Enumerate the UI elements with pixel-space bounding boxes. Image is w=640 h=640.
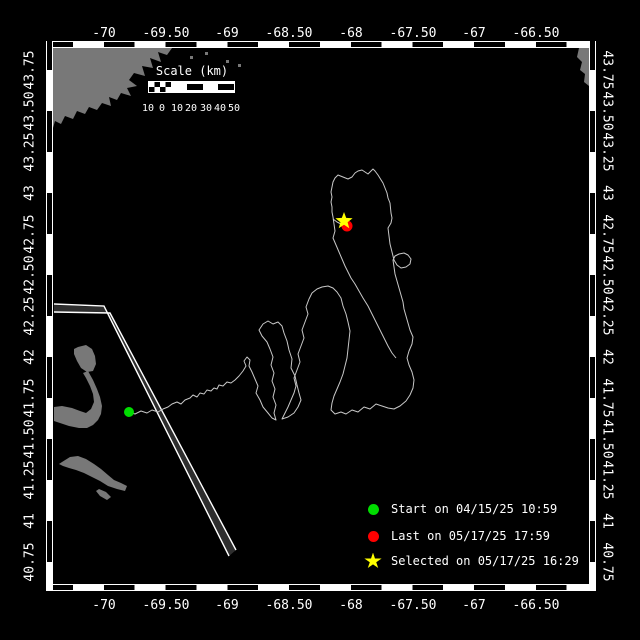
frame-left-border [46, 41, 53, 591]
scalebar-tick-label: 0 [159, 103, 165, 114]
lat-tick-label: 43 [23, 185, 38, 201]
island [205, 52, 208, 55]
island [190, 56, 193, 59]
land-polygon [577, 48, 589, 86]
lat-tick-label: 40.75 [23, 542, 38, 581]
lon-tick-label: -66.50 [513, 598, 560, 613]
legend-label-last: Last on 05/17/25 17:59 [391, 529, 550, 543]
frame-top-border [46, 41, 596, 48]
lon-tick-label: -70 [92, 26, 115, 41]
land-polygon [54, 371, 102, 428]
lat-tick-label: 43.25 [600, 132, 615, 171]
lat-tick-label: 42.25 [23, 296, 38, 335]
legend-item-selected: Selected on 05/17/25 16:29 [363, 553, 579, 569]
lat-tick-label: 42.25 [600, 296, 615, 335]
lat-tick-label: 41.25 [23, 460, 38, 499]
lon-tick-label: -67.50 [390, 26, 437, 41]
lat-tick-label: 42.50 [600, 255, 615, 294]
scalebar-segment [187, 82, 203, 92]
frame-bottom-border [46, 584, 596, 591]
island [238, 64, 241, 67]
lon-tick-label: -67.50 [390, 598, 437, 613]
lon-tick-label: -68.50 [266, 598, 313, 613]
scalebar-segment [203, 82, 219, 92]
lon-tick-label: -69.50 [143, 598, 190, 613]
lat-tick-label: 43.50 [23, 91, 38, 130]
lat-tick-label: 41.75 [23, 378, 38, 417]
lat-tick-label: 42.50 [23, 255, 38, 294]
scalebar-segment [218, 82, 234, 92]
frame-right-border [589, 41, 596, 591]
lat-tick-label: 41.50 [23, 419, 38, 458]
land-polygon [59, 456, 127, 491]
island [226, 60, 229, 63]
scalebar-checker-segment [149, 82, 171, 92]
scalebar-tick-label: 10 [142, 103, 154, 114]
scalebar-title: Scale (km) [148, 64, 236, 78]
scalebar-tick-label: 30 [200, 103, 212, 114]
scalebar-segment [171, 82, 187, 92]
map-canvas [0, 0, 640, 640]
shipping-lane-median [54, 305, 236, 556]
legend-item-start: Start on 04/15/25 10:59 [363, 501, 557, 517]
glider-track-path [129, 169, 414, 420]
lon-tick-label: -70 [92, 598, 115, 613]
lat-tick-label: 42 [23, 349, 38, 365]
lat-tick-label: 41 [600, 513, 615, 529]
lat-tick-label: 40.75 [600, 542, 615, 581]
last-legend-marker [363, 531, 383, 542]
lat-tick-label: 43.25 [23, 132, 38, 171]
glider-track-map-window: -70-69.50-69-68.50-68-67.50-67-66.50 -70… [0, 0, 640, 640]
lon-tick-label: -69 [215, 26, 238, 41]
scalebar-tick-label: 20 [185, 103, 197, 114]
scalebar [148, 81, 235, 93]
lat-tick-label: 43.75 [23, 50, 38, 89]
lon-tick-label: -67 [462, 26, 485, 41]
selected-legend-marker [363, 553, 383, 570]
lon-tick-label: -66.50 [513, 26, 560, 41]
lon-tick-label: -67 [462, 598, 485, 613]
lat-tick-label: 42.75 [600, 214, 615, 253]
lat-tick-label: 41.25 [600, 460, 615, 499]
start-position-marker[interactable] [124, 407, 134, 417]
lat-tick-label: 41.75 [600, 378, 615, 417]
lat-tick-label: 42 [600, 349, 615, 365]
lon-tick-label: -69.50 [143, 26, 190, 41]
yellow-star-icon [364, 553, 382, 570]
lat-tick-label: 41.50 [600, 419, 615, 458]
legend-label-selected: Selected on 05/17/25 16:29 [391, 554, 579, 568]
lat-tick-label: 43.50 [600, 91, 615, 130]
land-polygon [74, 345, 96, 372]
legend-item-last: Last on 05/17/25 17:59 [363, 528, 550, 544]
start-legend-marker [363, 504, 383, 515]
lat-tick-label: 43 [600, 185, 615, 201]
green-dot-icon [368, 504, 379, 515]
lon-tick-label: -68 [339, 26, 362, 41]
lat-tick-label: 41 [23, 513, 38, 529]
lon-tick-label: -68.50 [266, 26, 313, 41]
scalebar-tick-label: 50 [228, 103, 240, 114]
lon-tick-label: -68 [339, 598, 362, 613]
lat-tick-label: 42.75 [23, 214, 38, 253]
scalebar-tick-label: 40 [214, 103, 226, 114]
scalebar-tick-label: 10 [171, 103, 183, 114]
legend-label-start: Start on 04/15/25 10:59 [391, 502, 557, 516]
land-polygon [96, 489, 111, 500]
lat-tick-label: 43.75 [600, 50, 615, 89]
shipping-lane-line [54, 304, 229, 556]
lon-tick-label: -69 [215, 598, 238, 613]
red-dot-icon [368, 531, 379, 542]
